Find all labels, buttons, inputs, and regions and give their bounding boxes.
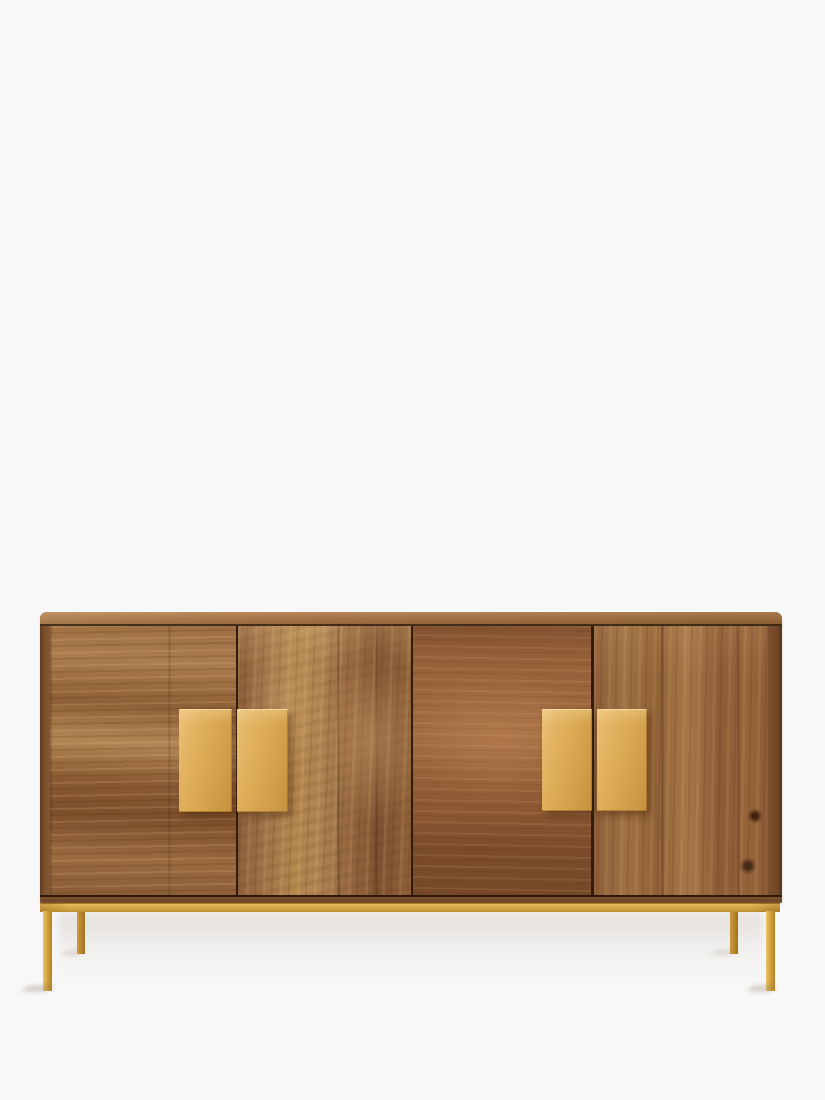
left-pair-handle-plate-left: [179, 709, 232, 812]
front-right-leg: [766, 911, 775, 991]
plinth-strip: [40, 895, 782, 903]
sideboard-carcass: [40, 612, 782, 903]
top-slab: [40, 612, 782, 626]
right-pair-handle-plate-right: [597, 709, 647, 811]
right-pair-handle-plate-left: [542, 709, 592, 811]
studio-background: [0, 0, 825, 1100]
front-left-leg: [43, 911, 52, 991]
floor-shadow: [58, 913, 764, 987]
left-pair-handle-plate-right: [237, 709, 288, 812]
base-rail: [40, 903, 780, 912]
back-left-leg: [77, 911, 85, 954]
back-right-leg: [730, 911, 738, 954]
